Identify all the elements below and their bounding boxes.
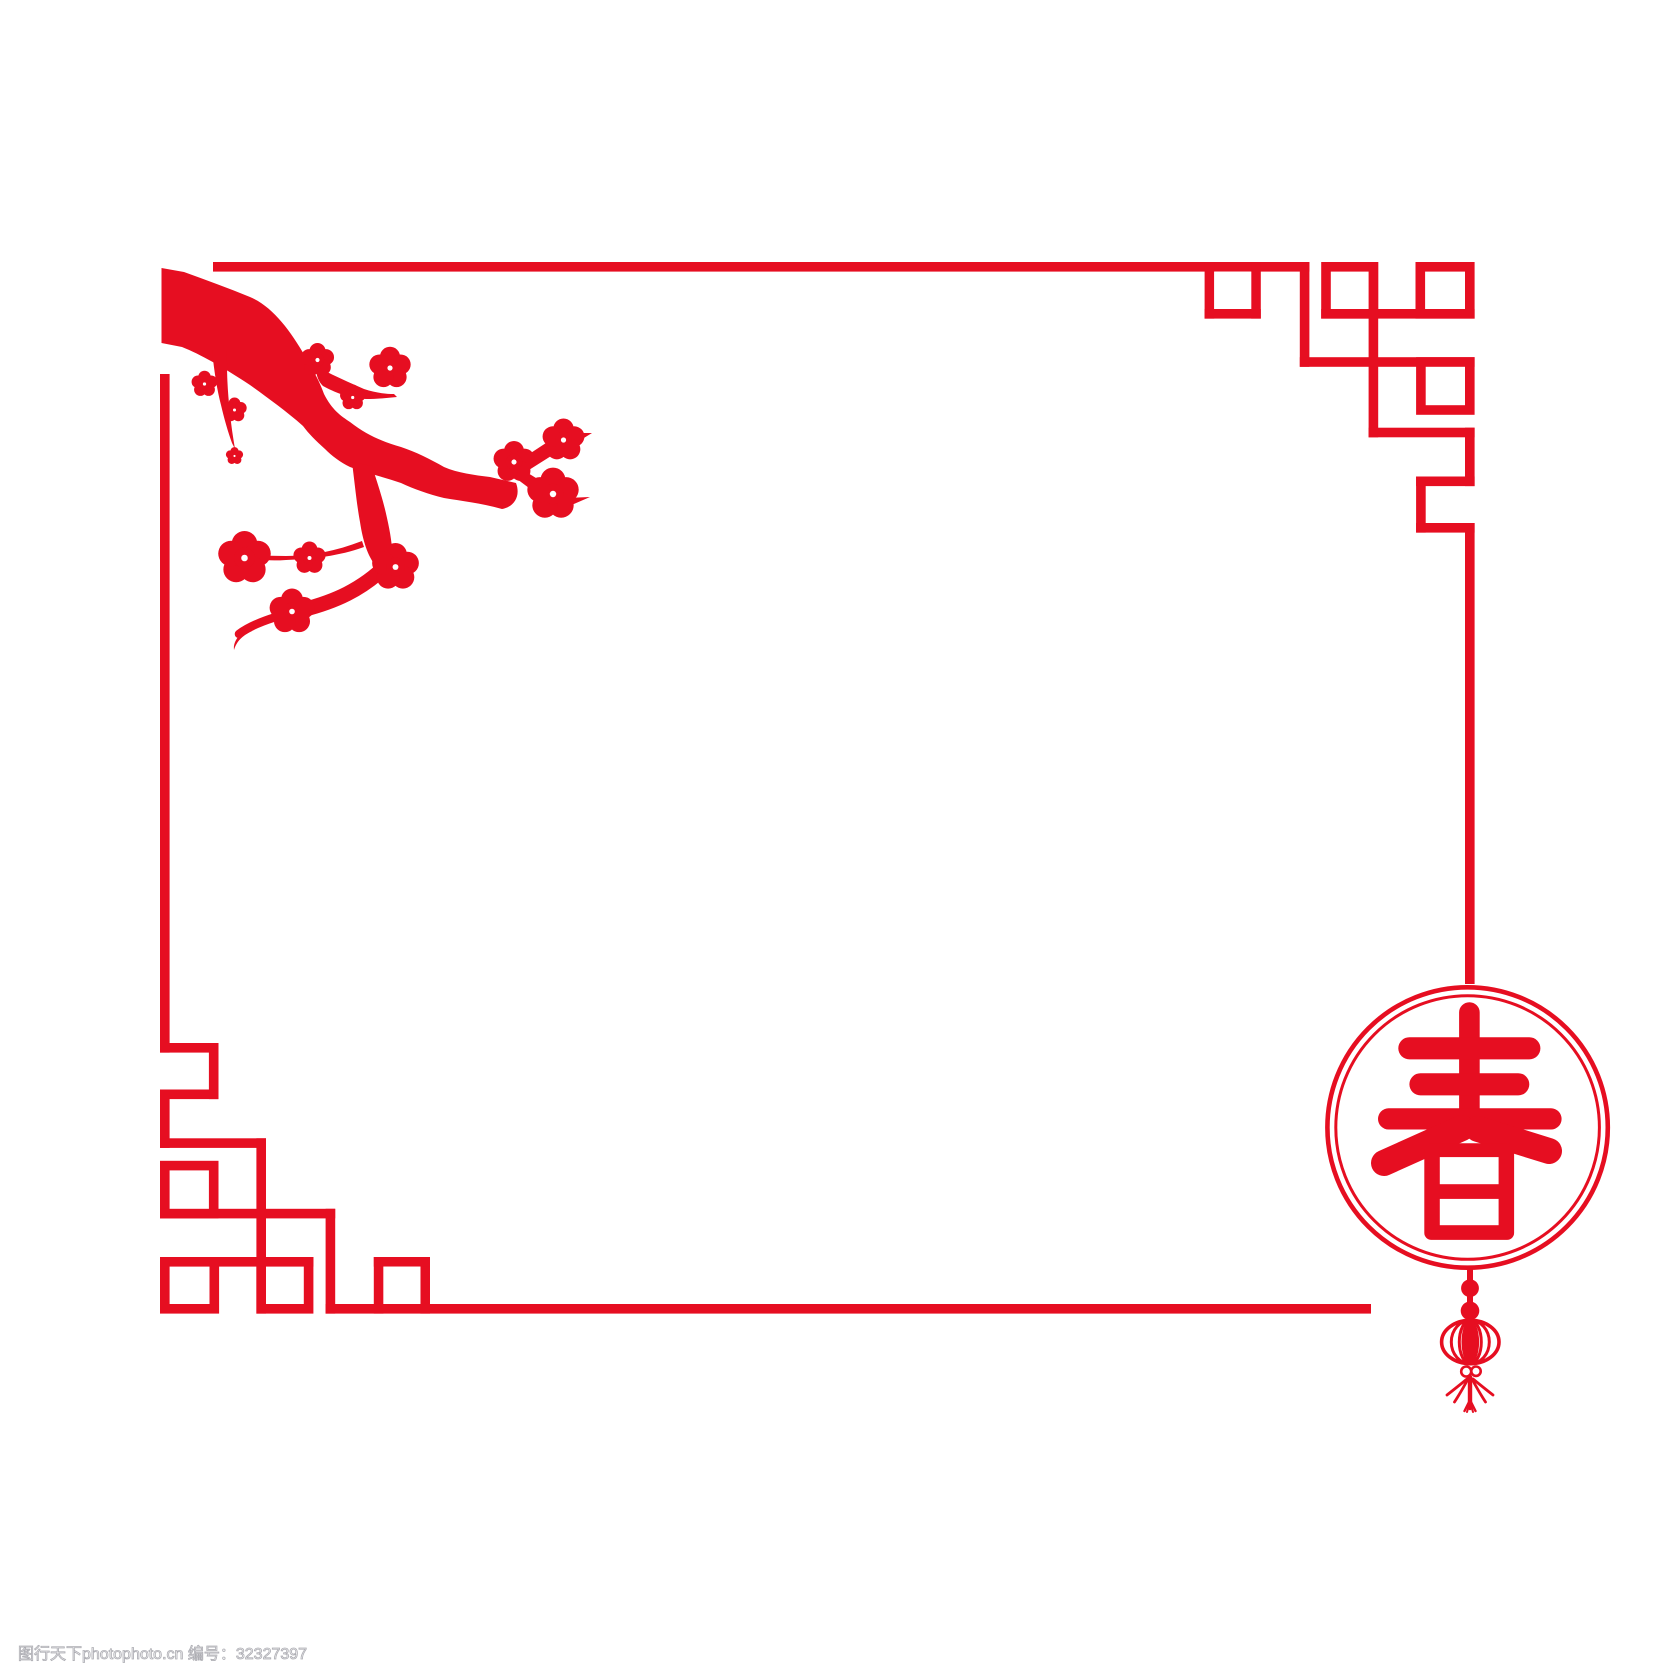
svg-text:图行天下photophoto.cn 编号：32327397: 图行天下photophoto.cn 编号：32327397 <box>18 1645 307 1663</box>
